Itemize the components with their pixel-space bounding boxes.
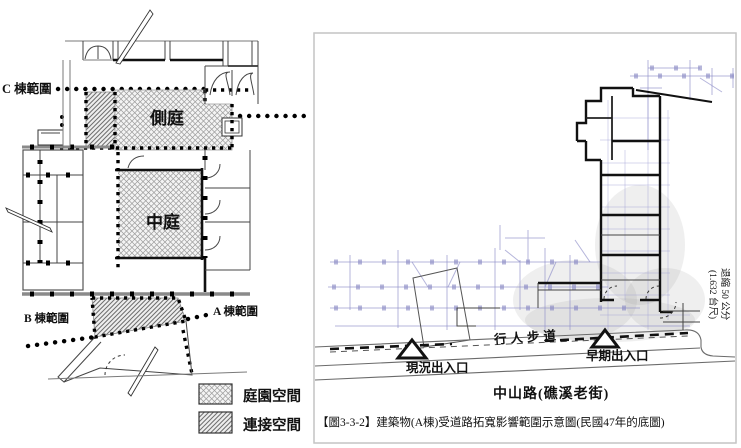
legend-swatch-garden: [199, 384, 232, 404]
setback-text-2: (1.632 台尺): [707, 270, 719, 319]
central-court: 中庭: [115, 152, 205, 268]
b-zone-label: B 棟範圍: [24, 311, 69, 325]
figure-page: C 棟範圍 側庭: [0, 0, 741, 448]
right-site-plan: 退縮 50 公分 (1.632 台尺) 行人步道 現況出入口 早期出入口 中山路…: [314, 33, 736, 443]
legend-label-link: 連接空間: [243, 416, 301, 434]
legend: 庭園空間 連接空間: [199, 384, 301, 434]
leader-arrow-icon: [128, 347, 158, 396]
side-court: 側庭: [60, 90, 250, 150]
upper-right-rooms: [205, 66, 258, 104]
swing-door-icon: [85, 46, 111, 59]
a-wing-hatch: [92, 298, 186, 337]
leader-arrow-icon: [6, 208, 52, 232]
left-floor-plan: C 棟範圍 側庭: [2, 10, 308, 434]
b-zone-dotted-line: [28, 337, 95, 346]
central-court-label: 中庭: [146, 212, 180, 232]
a-zone-dotted-line: [188, 314, 211, 319]
figure-caption: 【圖3-3-2】建築物(A棟)受道路拓寬影響範圍示意圖(民國47年的底圖): [317, 415, 665, 429]
legend-label-garden: 庭園空間: [243, 387, 301, 405]
current-entrance-label: 現況出入口: [406, 360, 469, 375]
early-entrance-label: 早期出入口: [586, 348, 649, 363]
legend-swatch-link: [199, 412, 232, 433]
right-wing-rooms: [205, 150, 250, 292]
setback-text-1: 退縮 50 公分: [719, 268, 731, 321]
c-zone-label: C 棟範圍: [2, 81, 52, 96]
c-wing-band: [65, 10, 258, 66]
side-court-label: 側庭: [149, 108, 184, 128]
leader-arrow-icon: [116, 10, 153, 64]
link-strip-hatch: [86, 92, 115, 148]
a-zone-label: A 棟範圍: [213, 304, 258, 318]
road-name-label: 中山路(礁溪老街): [493, 385, 609, 402]
figure-canvas: C 棟範圍 側庭: [0, 0, 741, 448]
